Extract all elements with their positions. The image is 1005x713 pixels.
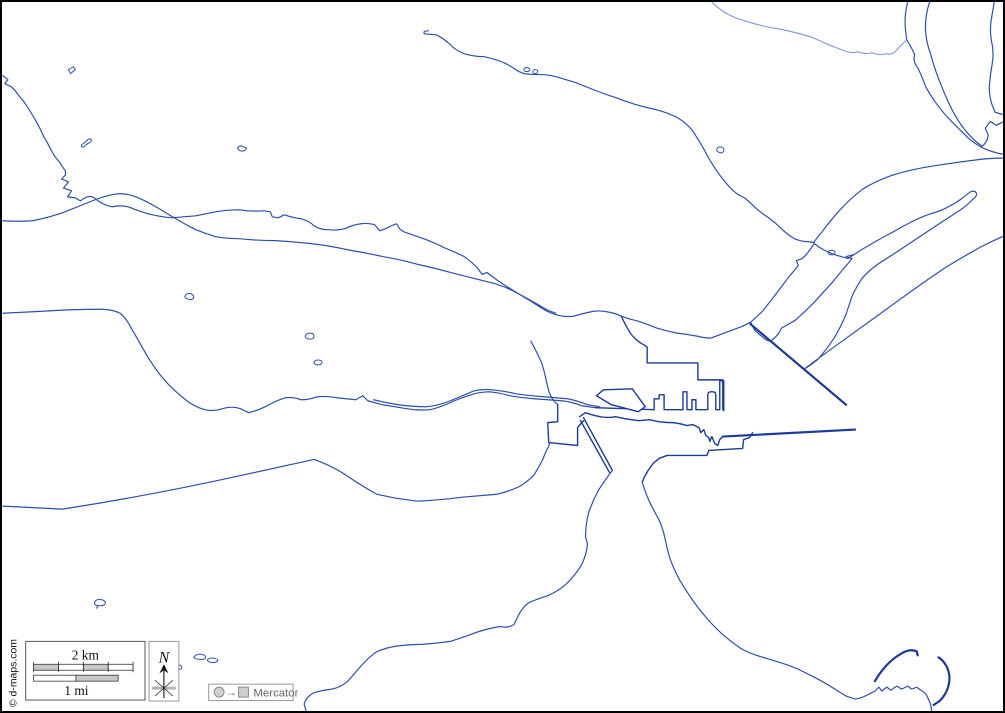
marina-breakwater-east (934, 657, 950, 705)
river-west-bank (304, 470, 612, 711)
projection-legend: → Mercator (209, 684, 299, 700)
scale-mi-seg2 (76, 675, 118, 681)
attribution: © d-maps.com (9, 639, 20, 707)
islet (524, 68, 530, 72)
islet (305, 333, 314, 339)
spit-upper-shore (814, 158, 1002, 242)
projection-label: Mercator (253, 688, 298, 700)
arrow-glyph: → (225, 685, 237, 699)
coastline-layer (3, 2, 1002, 711)
islet (185, 293, 194, 299)
scale-km-seg2 (59, 664, 84, 670)
straight-breakwater-east (723, 430, 855, 437)
scale-mi-label: 1 mi (64, 683, 88, 698)
scale-km-seg4 (108, 664, 133, 670)
square-glyph-icon (238, 687, 248, 697)
coastline-north-west (3, 76, 854, 342)
coastline-north-main (424, 31, 814, 243)
islet (81, 139, 91, 147)
straight-breakwater-diagonal (751, 324, 846, 405)
islet-layer (68, 67, 835, 670)
coastline-north-east-light (712, 2, 906, 55)
marina-breakwater-west (875, 650, 918, 681)
inland-line-south (3, 443, 550, 510)
islet (194, 654, 206, 659)
scale-km-seg1 (34, 664, 59, 670)
scale-mi-seg1 (34, 675, 76, 681)
river-east-bank (642, 482, 931, 711)
islet (533, 70, 538, 74)
north-arrow: N (149, 641, 179, 701)
scale-km-seg3 (83, 664, 108, 670)
island-north-east (925, 2, 1002, 146)
islet (68, 67, 75, 74)
coastline-ne-mainland (905, 2, 1002, 154)
harbour-jetty (548, 405, 584, 446)
inland-road-north-west (3, 194, 556, 314)
scale-km-label: 2 km (72, 647, 100, 662)
map-canvas: 2 km 1 mi N → Mercator © d-maps.com (2, 2, 1003, 711)
stepped-shore-to-river (642, 433, 752, 483)
islet (717, 147, 724, 153)
spit-lower-shore (806, 191, 976, 368)
islet (94, 599, 105, 608)
islet (314, 360, 322, 365)
islet (207, 658, 217, 663)
entrance-canal (581, 418, 613, 473)
north-label: N (158, 649, 171, 666)
harbour-south-shore (580, 413, 723, 446)
channel-west-edge (751, 244, 815, 323)
circle-glyph-icon (214, 687, 224, 697)
islet (237, 146, 246, 151)
map-frame: 2 km 1 mi N → Mercator © d-maps.com (0, 0, 1005, 713)
scale-bar: 2 km 1 mi (26, 641, 145, 700)
stream-to-road (531, 341, 558, 405)
sandbar-se-shore (804, 237, 1002, 369)
bay-west-shore (3, 309, 596, 412)
